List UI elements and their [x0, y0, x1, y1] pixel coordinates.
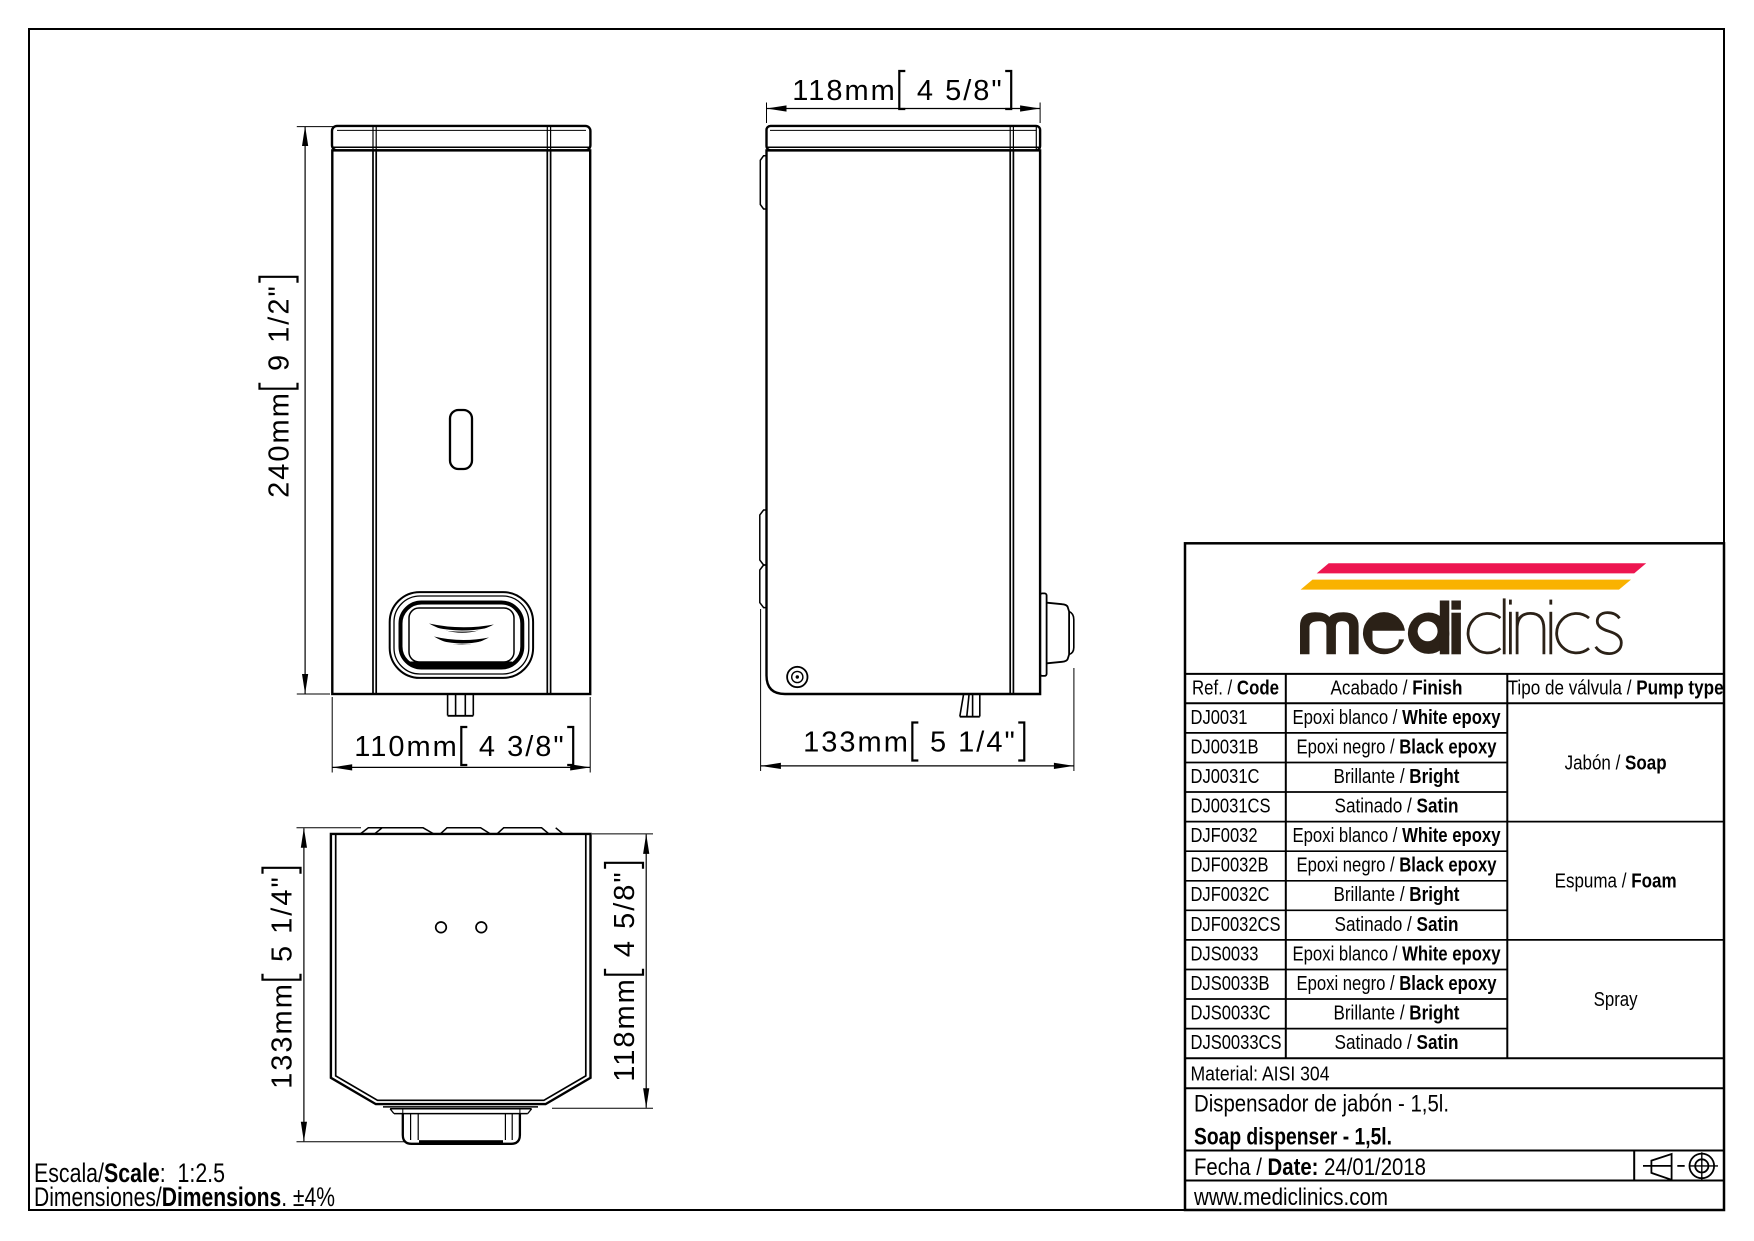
svg-text:www.mediclinics.com: www.mediclinics.com [1193, 1184, 1388, 1211]
svg-text:DJF0032C: DJF0032C [1191, 884, 1270, 906]
svg-text:Soap dispenser - 1,5l.: Soap dispenser - 1,5l. [1194, 1124, 1392, 1151]
svg-text:Spray: Spray [1594, 989, 1638, 1011]
svg-text:Dispensador de jabón - 1,5l.: Dispensador de jabón - 1,5l. [1194, 1091, 1449, 1118]
svg-text:DJS0033C: DJS0033C [1191, 1003, 1271, 1025]
svg-text:Brillante / Bright: Brillante / Bright [1334, 766, 1460, 788]
svg-text:Ref. / Code: Ref. / Code [1192, 678, 1279, 700]
svg-text:DJ0031: DJ0031 [1191, 707, 1248, 729]
svg-text:Epoxi blanco / White epoxy: Epoxi blanco / White epoxy [1293, 825, 1502, 847]
svg-text:DJS0033B: DJS0033B [1191, 973, 1270, 995]
svg-text:DJ0031C: DJ0031C [1191, 766, 1260, 788]
svg-text:DJF0032CS: DJF0032CS [1191, 914, 1281, 936]
svg-text:Brillante / Bright: Brillante / Bright [1334, 1003, 1460, 1025]
svg-text:DJF0032B: DJF0032B [1191, 855, 1269, 877]
svg-text:Tipo de válvula / Pump type: Tipo de válvula / Pump type [1508, 678, 1724, 700]
svg-text:Epoxi negro / Black epoxy: Epoxi negro / Black epoxy [1297, 855, 1498, 877]
svg-text:Espuma / Foam: Espuma / Foam [1555, 871, 1677, 893]
svg-text:Satinado / Satin: Satinado / Satin [1335, 796, 1459, 818]
svg-text:Epoxi negro / Black epoxy: Epoxi negro / Black epoxy [1297, 973, 1498, 995]
svg-text:Satinado / Satin: Satinado / Satin [1335, 1032, 1459, 1054]
svg-text:DJ0031CS: DJ0031CS [1191, 796, 1271, 818]
svg-text:Acabado / Finish: Acabado / Finish [1331, 678, 1463, 700]
svg-text:Satinado / Satin: Satinado / Satin [1335, 914, 1459, 936]
svg-text:Epoxi negro / Black epoxy: Epoxi negro / Black epoxy [1297, 736, 1498, 758]
svg-text:Brillante / Bright: Brillante / Bright [1334, 884, 1460, 906]
svg-text:Fecha / Date: 24/01/2018: Fecha / Date: 24/01/2018 [1194, 1154, 1426, 1181]
svg-text:Epoxi blanco / White epoxy: Epoxi blanco / White epoxy [1293, 707, 1502, 729]
svg-text:DJF0032: DJF0032 [1191, 825, 1258, 847]
svg-text:DJS0033: DJS0033 [1191, 943, 1259, 965]
svg-text:Material: AISI 304: Material: AISI 304 [1191, 1063, 1330, 1085]
svg-text:DJ0031B: DJ0031B [1191, 736, 1259, 758]
svg-text:Jabón / Soap: Jabón / Soap [1565, 752, 1667, 774]
svg-text:Epoxi blanco / White epoxy: Epoxi blanco / White epoxy [1293, 943, 1502, 965]
svg-text:DJS0033CS: DJS0033CS [1191, 1032, 1282, 1054]
